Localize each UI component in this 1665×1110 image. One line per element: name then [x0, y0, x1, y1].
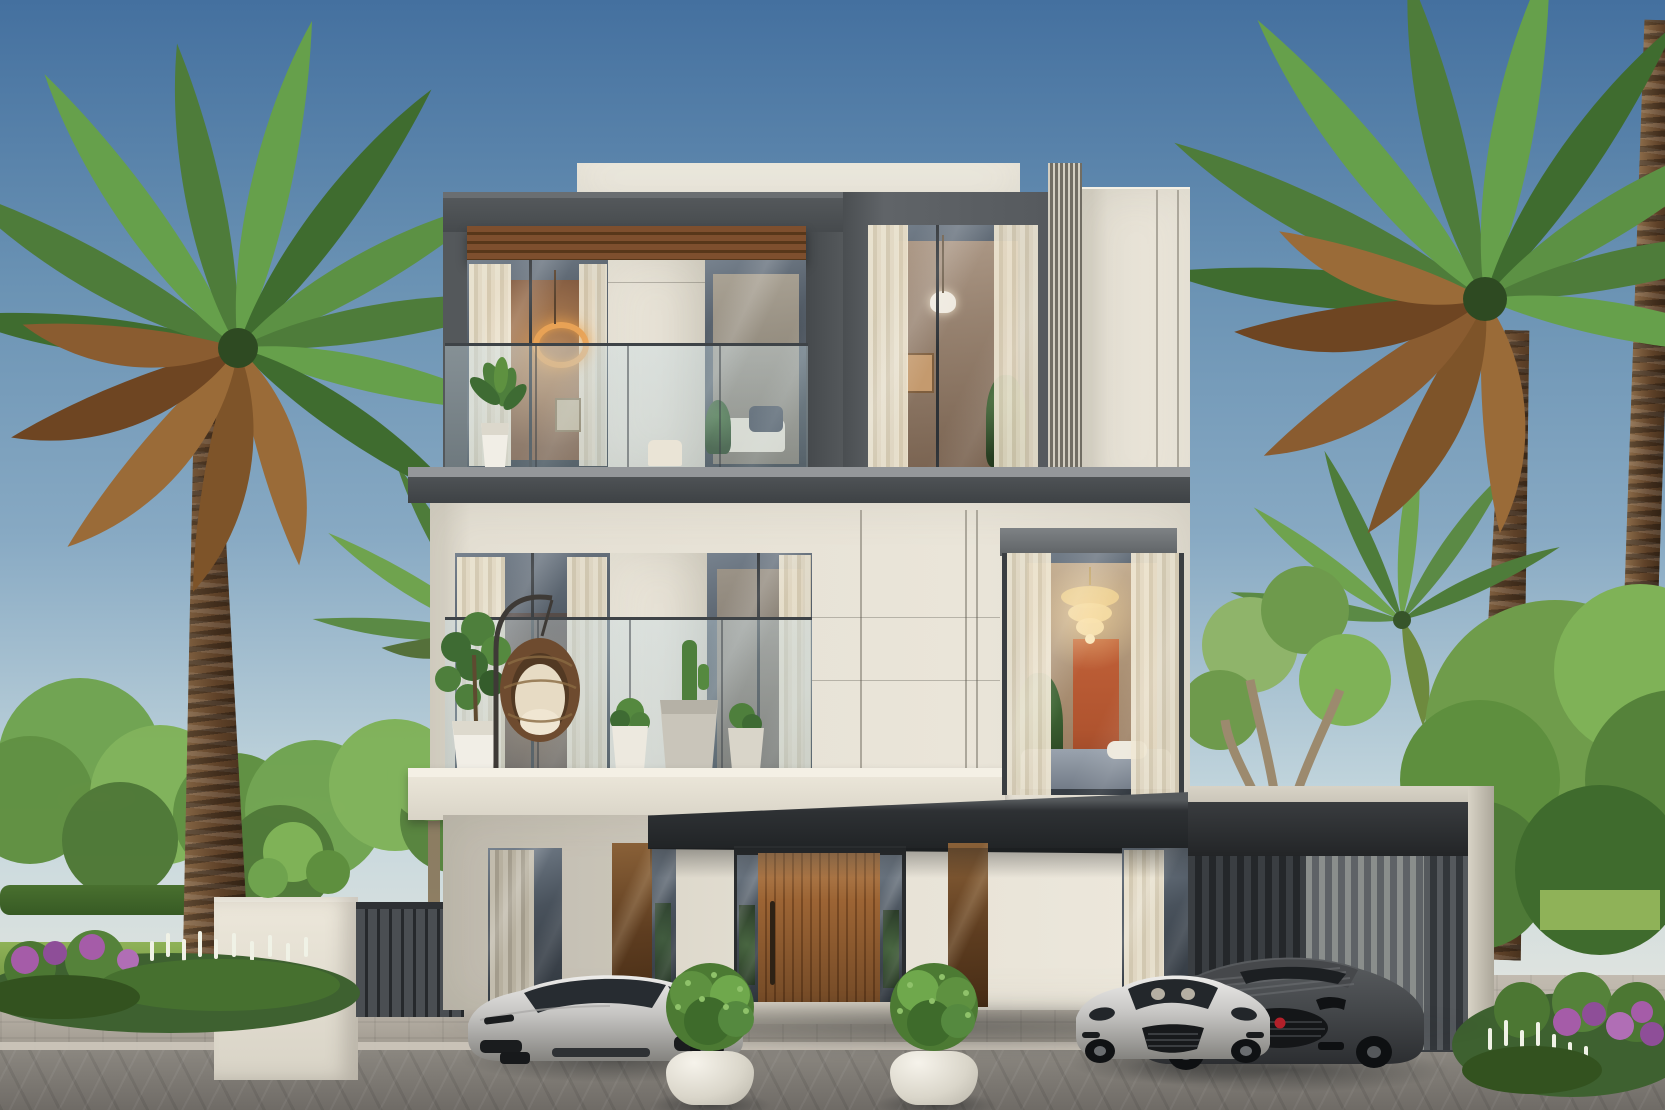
- topiary-shrub: [648, 955, 773, 1065]
- aston-grille: [1142, 1024, 1204, 1053]
- vehicle-silver-grand-tourer: [1066, 952, 1280, 1066]
- carport-roof: [1188, 800, 1492, 856]
- villa-exterior-render: [0, 0, 1665, 1110]
- planter-right: [872, 955, 997, 1105]
- planter-pot-white: [890, 1051, 978, 1105]
- wheel: [500, 1052, 530, 1064]
- carport-fascia-top: [1188, 786, 1492, 802]
- topiary-shrub: [872, 955, 997, 1065]
- planter-pot-white: [666, 1051, 754, 1105]
- planter-left: [648, 955, 773, 1105]
- flower-bed-right: [1472, 950, 1665, 1100]
